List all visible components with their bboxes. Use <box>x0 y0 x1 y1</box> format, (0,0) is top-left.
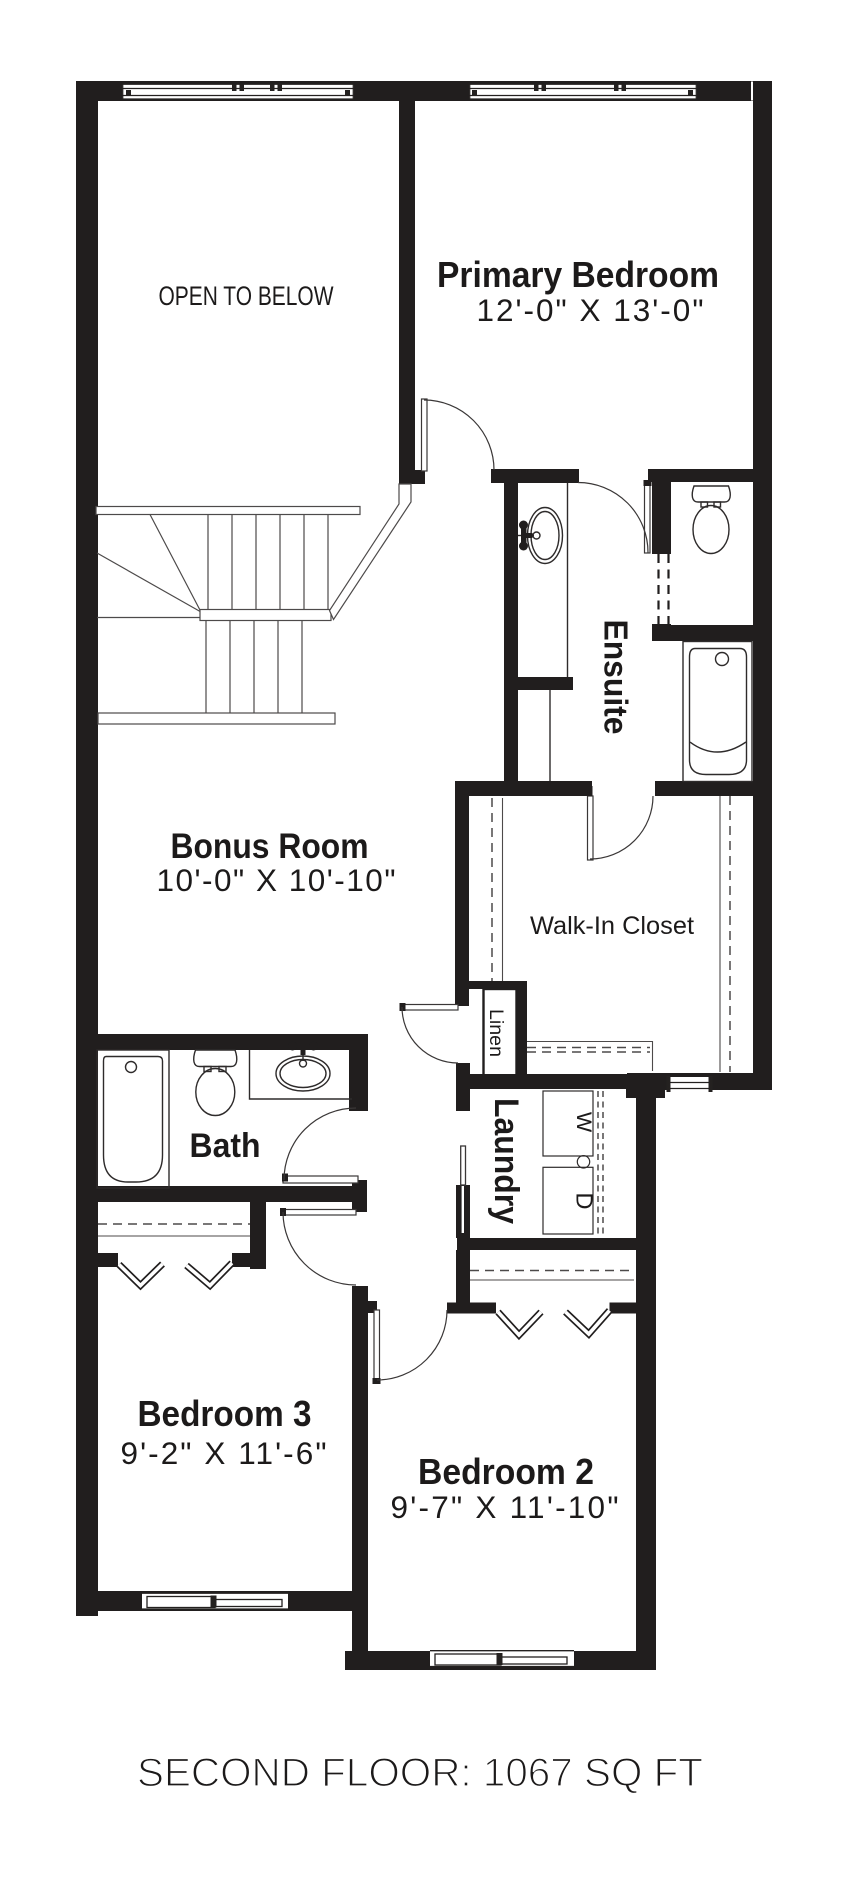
svg-text:OPEN TO BELOW: OPEN TO BELOW <box>159 281 334 311</box>
svg-text:Walk-In Closet: Walk-In Closet <box>530 912 694 940</box>
svg-text:9'-7" X 11'-10": 9'-7" X 11'-10" <box>391 1489 619 1525</box>
svg-text:Laundry: Laundry <box>487 1098 525 1224</box>
svg-text:W: W <box>572 1112 596 1133</box>
svg-text:9'-2" X 11'-6": 9'-2" X 11'-6" <box>121 1435 327 1471</box>
svg-text:Bath: Bath <box>190 1127 261 1165</box>
svg-text:SECOND FLOOR: 1067 SQ FT: SECOND FLOOR: 1067 SQ FT <box>137 1751 703 1795</box>
svg-text:Ensuite: Ensuite <box>598 620 635 735</box>
svg-text:Bedroom 2: Bedroom 2 <box>418 1451 594 1492</box>
svg-text:Linen: Linen <box>485 1009 506 1057</box>
svg-text:Bedroom 3: Bedroom 3 <box>138 1393 312 1434</box>
svg-text:Primary Bedroom: Primary Bedroom <box>437 254 719 295</box>
svg-text:10'-0" X 10'-10": 10'-0" X 10'-10" <box>157 862 396 898</box>
svg-text:12'-0" X 13'-0": 12'-0" X 13'-0" <box>477 292 704 328</box>
svg-text:Bonus Room: Bonus Room <box>171 827 369 866</box>
svg-text:D: D <box>572 1193 598 1210</box>
